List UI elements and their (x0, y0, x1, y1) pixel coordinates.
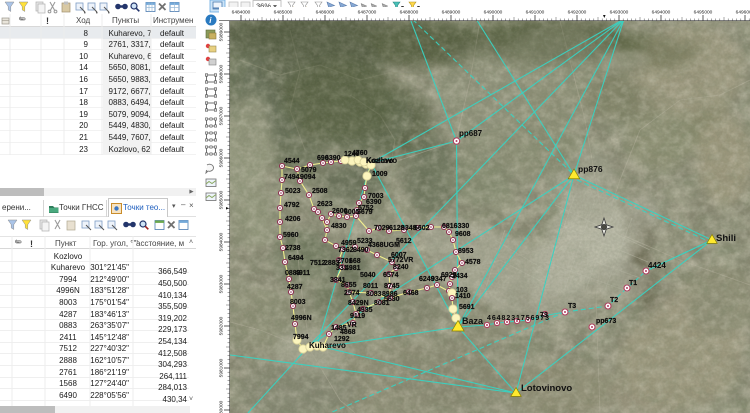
svg-text:pp673: pp673 (596, 318, 616, 325)
svg-text:6489000: 6489000 (442, 10, 461, 16)
svg-text:6494000: 6494000 (652, 10, 671, 16)
svg-text:6390: 6390 (325, 155, 341, 162)
svg-text:9608: 9608 (455, 231, 471, 238)
svg-text:T3: T3 (568, 303, 576, 310)
svg-text:8429N: 8429N (348, 300, 369, 307)
svg-text:T2: T2 (610, 297, 618, 304)
svg-text:4578: 4578 (465, 259, 481, 266)
svg-text:1009: 1009 (372, 171, 388, 178)
svg-text:9119: 9119 (350, 313, 365, 320)
svg-text:Kuharevo: Kuharevo (309, 341, 346, 350)
svg-text:4830: 4830 (331, 223, 347, 230)
svg-text:5984000: 5984000 (219, 232, 225, 251)
svg-text:9094: 9094 (300, 174, 316, 181)
svg-text:8003: 8003 (290, 299, 306, 306)
svg-text:6488000: 6488000 (400, 10, 419, 16)
svg-text:4648231756973: 4648231756973 (487, 315, 549, 322)
svg-text:4206: 4206 (285, 216, 301, 223)
svg-text:6491000: 6491000 (526, 10, 545, 16)
svg-text:668: 668 (349, 258, 361, 265)
svg-text:5612: 5612 (396, 238, 412, 245)
svg-text:6490000: 6490000 (484, 10, 503, 16)
svg-text:6485000: 6485000 (274, 10, 293, 16)
svg-text:4544: 4544 (284, 158, 300, 165)
svg-text:4959: 4959 (341, 240, 357, 247)
svg-text:6816330: 6816330 (442, 223, 469, 230)
svg-text:8953: 8953 (458, 248, 474, 255)
svg-text:6494: 6494 (288, 255, 304, 262)
svg-text:7362: 7362 (338, 247, 354, 254)
svg-text:6484000: 6484000 (232, 10, 251, 16)
svg-text:5960: 5960 (283, 232, 299, 239)
svg-text:4981: 4981 (345, 265, 361, 272)
svg-text:5986000: 5986000 (219, 148, 225, 167)
svg-text:7029: 7029 (374, 225, 390, 232)
svg-text:pp876: pp876 (578, 164, 603, 174)
svg-text:8081: 8081 (374, 300, 390, 307)
svg-text:5985000: 5985000 (219, 190, 225, 209)
svg-text:5981000: 5981000 (219, 358, 225, 377)
svg-text:6486000: 6486000 (316, 10, 335, 16)
svg-text:8240: 8240 (393, 264, 409, 271)
svg-text:6487000: 6487000 (358, 10, 377, 16)
svg-text:6468: 6468 (403, 290, 419, 297)
svg-text:VR: VR (347, 322, 357, 329)
svg-text:pp687: pp687 (459, 129, 483, 138)
svg-text:Kozlovo: Kozlovo (366, 156, 397, 165)
svg-text:Baza: Baza (462, 316, 484, 326)
svg-text:7994: 7994 (293, 334, 309, 341)
svg-text:4996N: 4996N (291, 315, 312, 322)
svg-text:5988000: 5988000 (219, 64, 225, 83)
svg-text:4424: 4424 (648, 261, 666, 270)
svg-text:2623: 2623 (317, 201, 333, 208)
svg-text:6493000: 6493000 (610, 10, 629, 16)
svg-text:Shili: Shili (716, 233, 736, 244)
svg-text:5983000: 5983000 (219, 274, 225, 293)
svg-text:6574: 6574 (383, 272, 399, 279)
svg-text:4287: 4287 (287, 284, 303, 291)
svg-text:4911: 4911 (295, 270, 310, 277)
svg-text:8011: 8011 (363, 283, 378, 290)
svg-text:8655: 8655 (341, 282, 357, 289)
svg-text:6495000: 6495000 (694, 10, 713, 16)
svg-text:2738: 2738 (285, 245, 301, 252)
svg-text:5987000: 5987000 (219, 106, 225, 125)
svg-text:5679: 5679 (357, 209, 373, 216)
svg-text:7494: 7494 (284, 174, 300, 181)
svg-text:2508: 2508 (312, 188, 328, 195)
svg-text:2574: 2574 (344, 290, 360, 297)
svg-text:6496000: 6496000 (736, 10, 750, 16)
svg-text:Lotovinovo: Lotovinovo (521, 383, 572, 394)
svg-text:5772VR: 5772VR (388, 257, 413, 264)
svg-text:8490: 8490 (353, 247, 369, 254)
svg-text:6602: 6602 (414, 225, 430, 232)
svg-text:5079: 5079 (301, 167, 317, 174)
svg-text:4868: 4868 (340, 329, 356, 336)
svg-text:8745: 8745 (384, 283, 400, 290)
svg-text:5989000: 5989000 (219, 22, 225, 41)
svg-text:6492000: 6492000 (568, 10, 587, 16)
svg-text:5982000: 5982000 (219, 316, 225, 335)
svg-text:5040: 5040 (360, 272, 376, 279)
svg-text:4792: 4792 (284, 202, 300, 209)
svg-text:T1: T1 (629, 280, 637, 287)
svg-text:1410: 1410 (455, 293, 471, 300)
svg-text:2434: 2434 (452, 273, 468, 280)
svg-text:5980000: 5980000 (219, 400, 225, 413)
svg-text:5691: 5691 (459, 304, 475, 311)
svg-text:5023: 5023 (285, 188, 301, 195)
svg-text:8083: 8083 (366, 291, 382, 298)
